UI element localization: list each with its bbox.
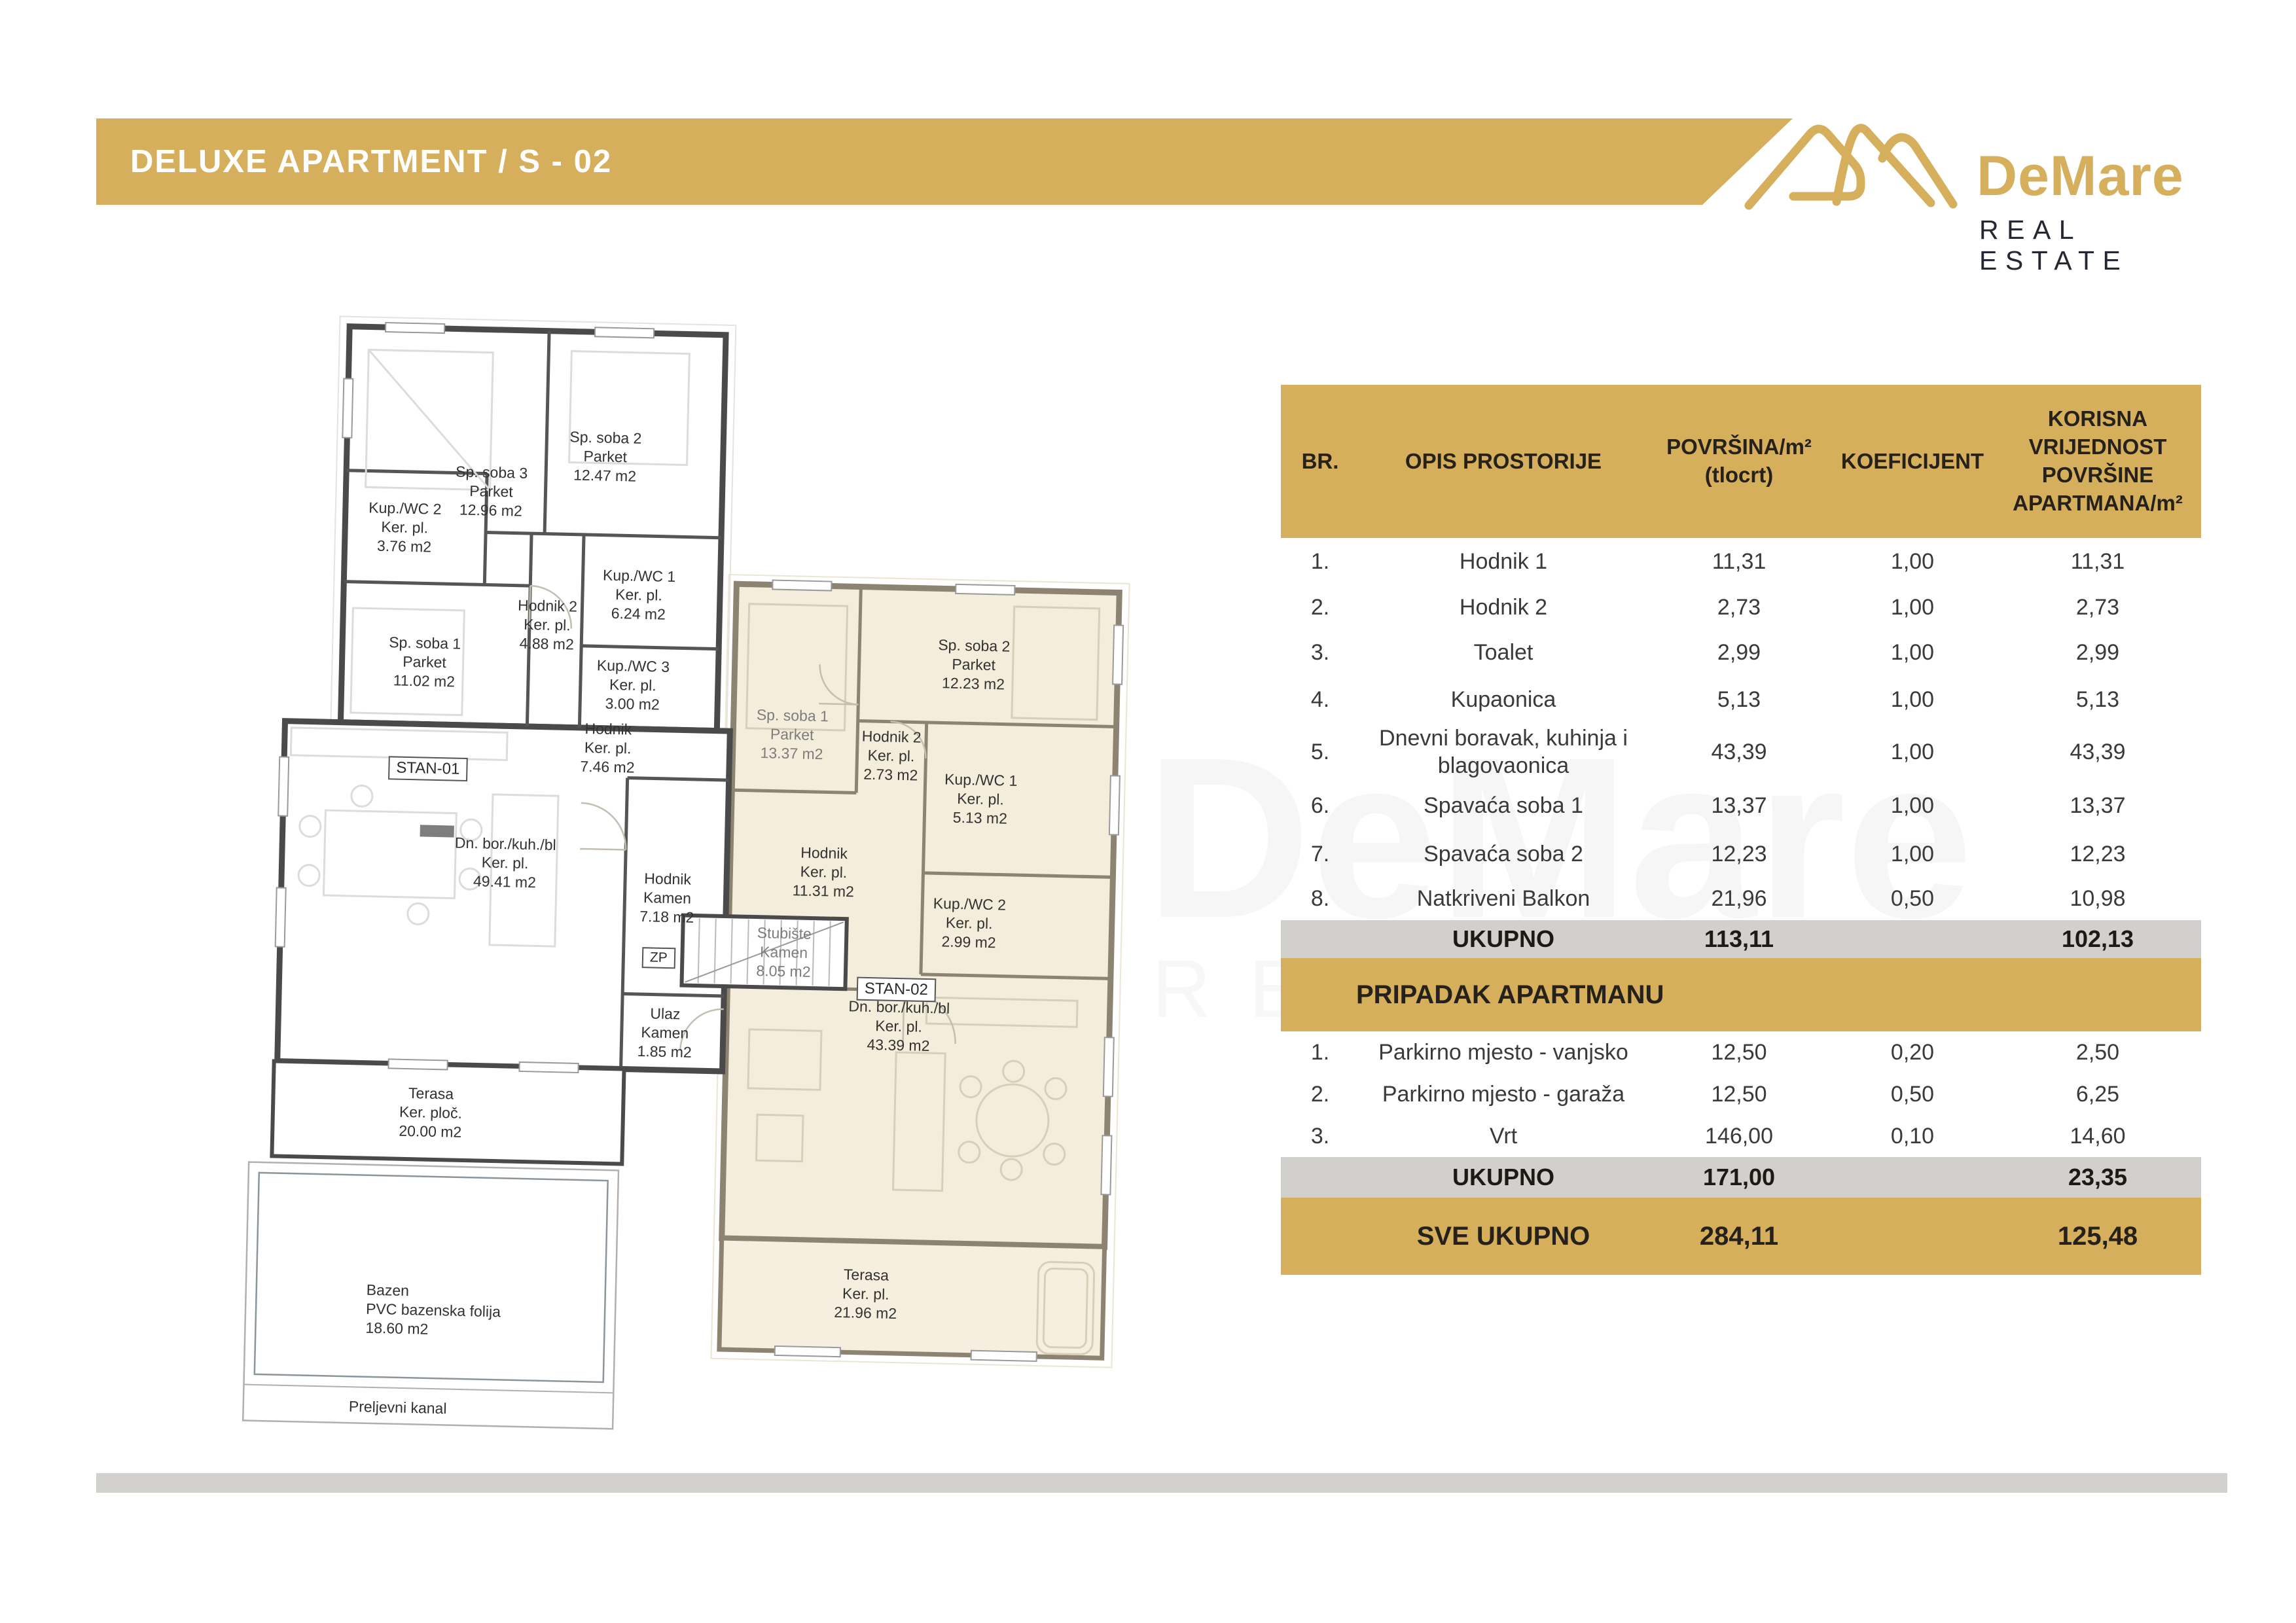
area-table: BR. OPIS PROSTORIJE POVRŠINA/m² (tlocrt)… — [1281, 385, 2201, 1275]
label-zp: ZP — [642, 947, 676, 969]
logo-subtitle: REAL ESTATE — [1979, 215, 2233, 276]
table-row: 1.Parkirno mjesto - vanjsko 12,500,202,5… — [1281, 1031, 2201, 1073]
room-label-stubiste: StubišteKamen8.05 m2 — [756, 923, 812, 981]
title-bar: DELUXE APARTMENT / S - 02 — [96, 118, 1793, 205]
room-label-s02-hodnik2: Hodnik 2Ker. pl.2.73 m2 — [861, 727, 922, 785]
room-label-s02-kupwc2: Kup./WC 2Ker. pl.2.99 m2 — [932, 894, 1006, 952]
room-label-s01-ulaz: UlazKamen1.85 m2 — [637, 1004, 692, 1061]
subtotal-row-extras: UKUPNO 171,0023,35 — [1281, 1157, 2201, 1198]
room-label-s02-dnevni: Dn. bor./kuh./blKer. pl.43.39 m2 — [848, 997, 950, 1056]
section-band-pripadak: PRIPADAK APARTMANU — [1281, 958, 2201, 1031]
table-row: 3.Vrt 146,000,1014,60 — [1281, 1115, 2201, 1157]
room-label-s02-hodnik: HodnikKer. pl.11.31 m2 — [792, 843, 855, 901]
room-label-s02-terasa: TerasaKer. pl.21.96 m2 — [834, 1265, 898, 1323]
label-bazen: BazenPVC bazenska folija18.60 m2 — [365, 1281, 501, 1340]
floor-plan: Sp. soba 3Parket12.96 m2 Sp. soba 2Parke… — [183, 297, 1158, 1463]
grand-total-row: SVE UKUPNO 284,11125,48 — [1281, 1198, 2201, 1275]
col-header-opis: OPIS PROSTORIJE — [1359, 448, 1647, 476]
room-label-s01-soba1: Sp. soba 1Parket11.02 m2 — [388, 633, 461, 691]
footer-bar — [96, 1473, 2227, 1493]
room-label-s02-soba2: Sp. soba 2Parket12.23 m2 — [937, 635, 1011, 694]
table-row: 2.Parkirno mjesto - garaža 12,500,506,25 — [1281, 1073, 2201, 1115]
room-label-s01-dnevni: Dn. bor./kuh./blKer. pl.49.41 m2 — [454, 833, 556, 892]
room-label-s01-hodnik2: Hodnik 2Ker. pl.4.88 m2 — [517, 596, 578, 654]
room-label-s01-kupwc3: Kup./WC 3Ker. pl.3.00 m2 — [596, 656, 670, 714]
page-title: DELUXE APARTMENT / S - 02 — [130, 143, 612, 180]
logo-brand-name: DeMare — [1977, 144, 2184, 209]
col-header-povrsina: POVRŠINA/m² (tlocrt) — [1647, 433, 1831, 490]
room-label-s01-soba2: Sp. soba 2Parket12.47 m2 — [569, 427, 642, 486]
table-row: 2.Hodnik 2 2,731,002,73 — [1281, 585, 2201, 630]
col-header-koeficijent: KOEFICIJENT — [1831, 448, 1994, 476]
unit-badge-stan-01: STAN-01 — [388, 756, 468, 781]
flyer-page: DeMare REAL ESTATE DELUXE APARTMENT / S … — [0, 0, 2296, 1623]
subtotal-row-apartment: UKUPNO 113,11102,13 — [1281, 920, 2201, 958]
demare-logo-icon — [1742, 122, 1971, 262]
room-label-s01-kupwc2: Kup./WC 2Ker. pl.3.76 m2 — [368, 498, 442, 556]
room-label-s01-soba3: Sp. soba 3Parket12.96 m2 — [455, 462, 528, 520]
room-label-s02-soba1: Sp. soba 1Parket13.37 m2 — [755, 705, 829, 764]
table-row: 4.Kupaonica 5,131,005,13 — [1281, 675, 2201, 724]
room-label-s01-terasa: TerasaKer. ploč.20.00 m2 — [399, 1084, 463, 1141]
demare-logo: DeMare REAL ESTATE — [1742, 122, 2233, 262]
room-label-s01-kupwc1: Kup./WC 1Ker. pl.6.24 m2 — [601, 566, 675, 624]
table-row: 7.Spavaća soba 2 12,231,0012,23 — [1281, 831, 2201, 877]
col-header-br: BR. — [1281, 448, 1359, 476]
label-preljevni-kanal: Preljevni kanal — [349, 1397, 447, 1418]
table-header-row: BR. OPIS PROSTORIJE POVRŠINA/m² (tlocrt)… — [1281, 385, 2201, 538]
room-label-s01-hodnik: HodnikKer. pl.7.46 m2 — [580, 719, 636, 777]
table-row: 5.Dnevni boravak, kuhinja i blagovaonica… — [1281, 724, 2201, 780]
table-row: 3.Toalet 2,991,002,99 — [1281, 630, 2201, 675]
room-label-s01-hodnik-kamen: HodnikKamen7.18 m2 — [639, 869, 695, 927]
table-row: 8.Natkriveni Balkon 21,960,5010,98 — [1281, 877, 2201, 920]
table-row: 1.Hodnik 1 11,311,0011,31 — [1281, 538, 2201, 585]
room-label-s02-kupwc1: Kup./WC 1Ker. pl.5.13 m2 — [943, 770, 1017, 828]
table-row: 6.Spavaća soba 1 13,371,0013,37 — [1281, 780, 2201, 831]
col-header-korisna: KORISNA VRIJEDNOST POVRŠINE APARTMANA/m² — [1994, 405, 2201, 518]
